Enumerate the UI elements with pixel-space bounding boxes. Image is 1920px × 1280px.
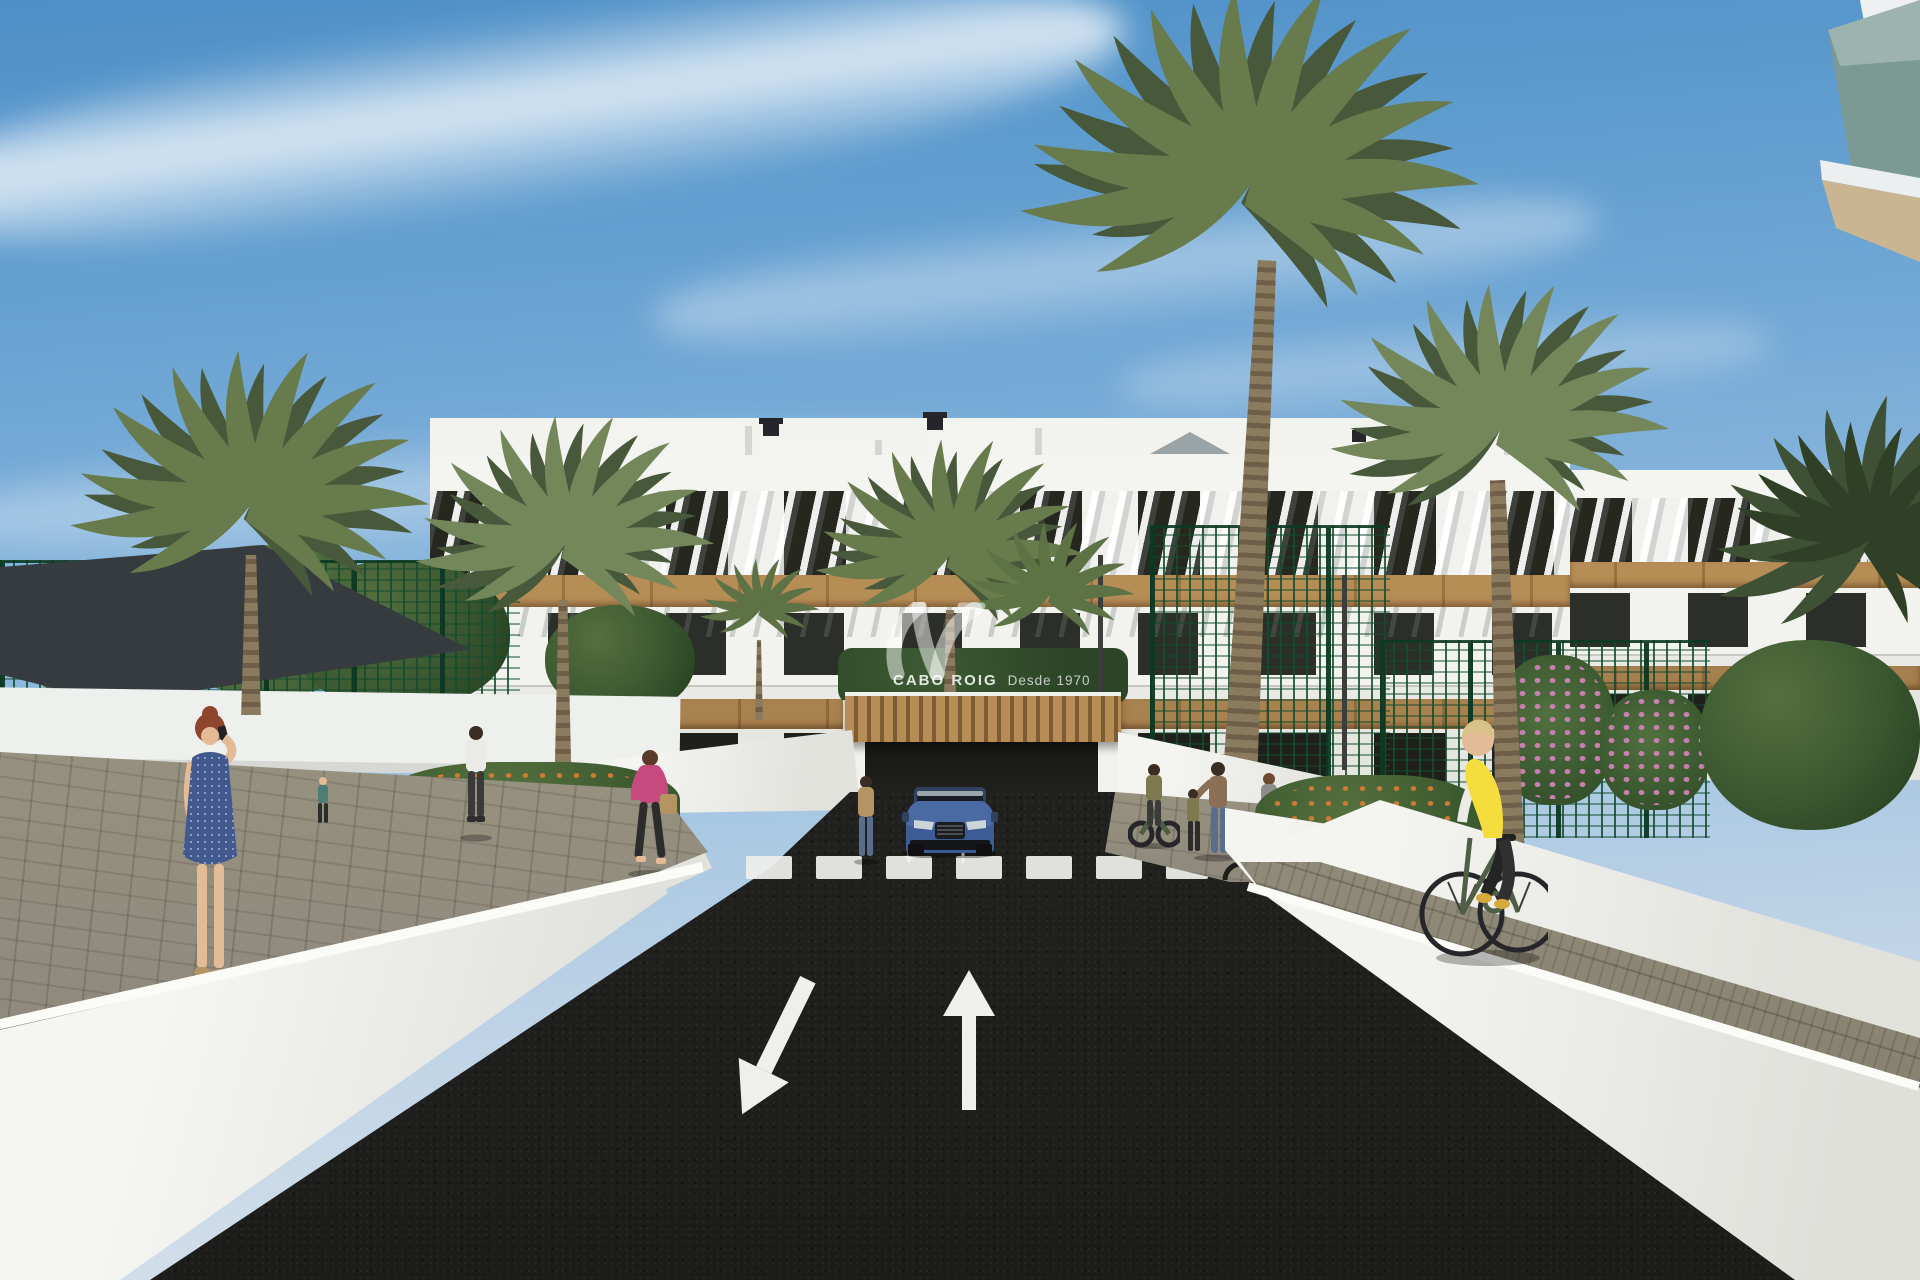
palm-tree (965, 525, 1135, 649)
woman-in-blue-dress (160, 706, 260, 990)
blue-suv (900, 782, 1000, 858)
flowering-bush (1600, 690, 1710, 810)
cyclist-yellow-vest (1418, 706, 1548, 976)
architectural-render-scene: CABO ROIG Desde 1970 (0, 0, 1920, 1280)
woman-in-pink-jacket (612, 748, 687, 878)
palm-tree (415, 422, 715, 640)
palm-tree (700, 561, 820, 648)
man-with-bicycle (1128, 762, 1180, 850)
sports-court-fence-right (1150, 525, 1390, 778)
light-pole (1342, 575, 1347, 770)
palm-tree-far-right (1710, 409, 1920, 642)
rooftop-umbrella (1150, 432, 1230, 454)
chimney (763, 422, 779, 436)
pedestrian-at-entrance (850, 774, 882, 866)
watermark-text: CABO ROIG Desde 1970 (893, 672, 1090, 689)
chimney (927, 416, 943, 430)
crosswalk-stripe (1096, 856, 1142, 879)
crosswalk-stripe (1026, 856, 1072, 879)
chimney-cap (923, 412, 947, 418)
watermark-tagline: Desde 1970 (1008, 673, 1091, 688)
garage-wood-canopy (845, 692, 1121, 742)
palm-tree (1330, 291, 1670, 538)
lane-arrow-away (936, 970, 1002, 1110)
watermark-logo (885, 602, 990, 680)
palm-tree-tall (1020, 0, 1480, 332)
watermark-brand: CABO ROIG (893, 672, 998, 689)
chimney-cap (759, 418, 783, 424)
palm-tree (70, 358, 430, 620)
man-in-white-shirt (452, 724, 500, 842)
shrubs-far-right (1700, 640, 1920, 830)
distant-pedestrian (313, 775, 333, 827)
crosswalk-stripe (746, 856, 792, 879)
